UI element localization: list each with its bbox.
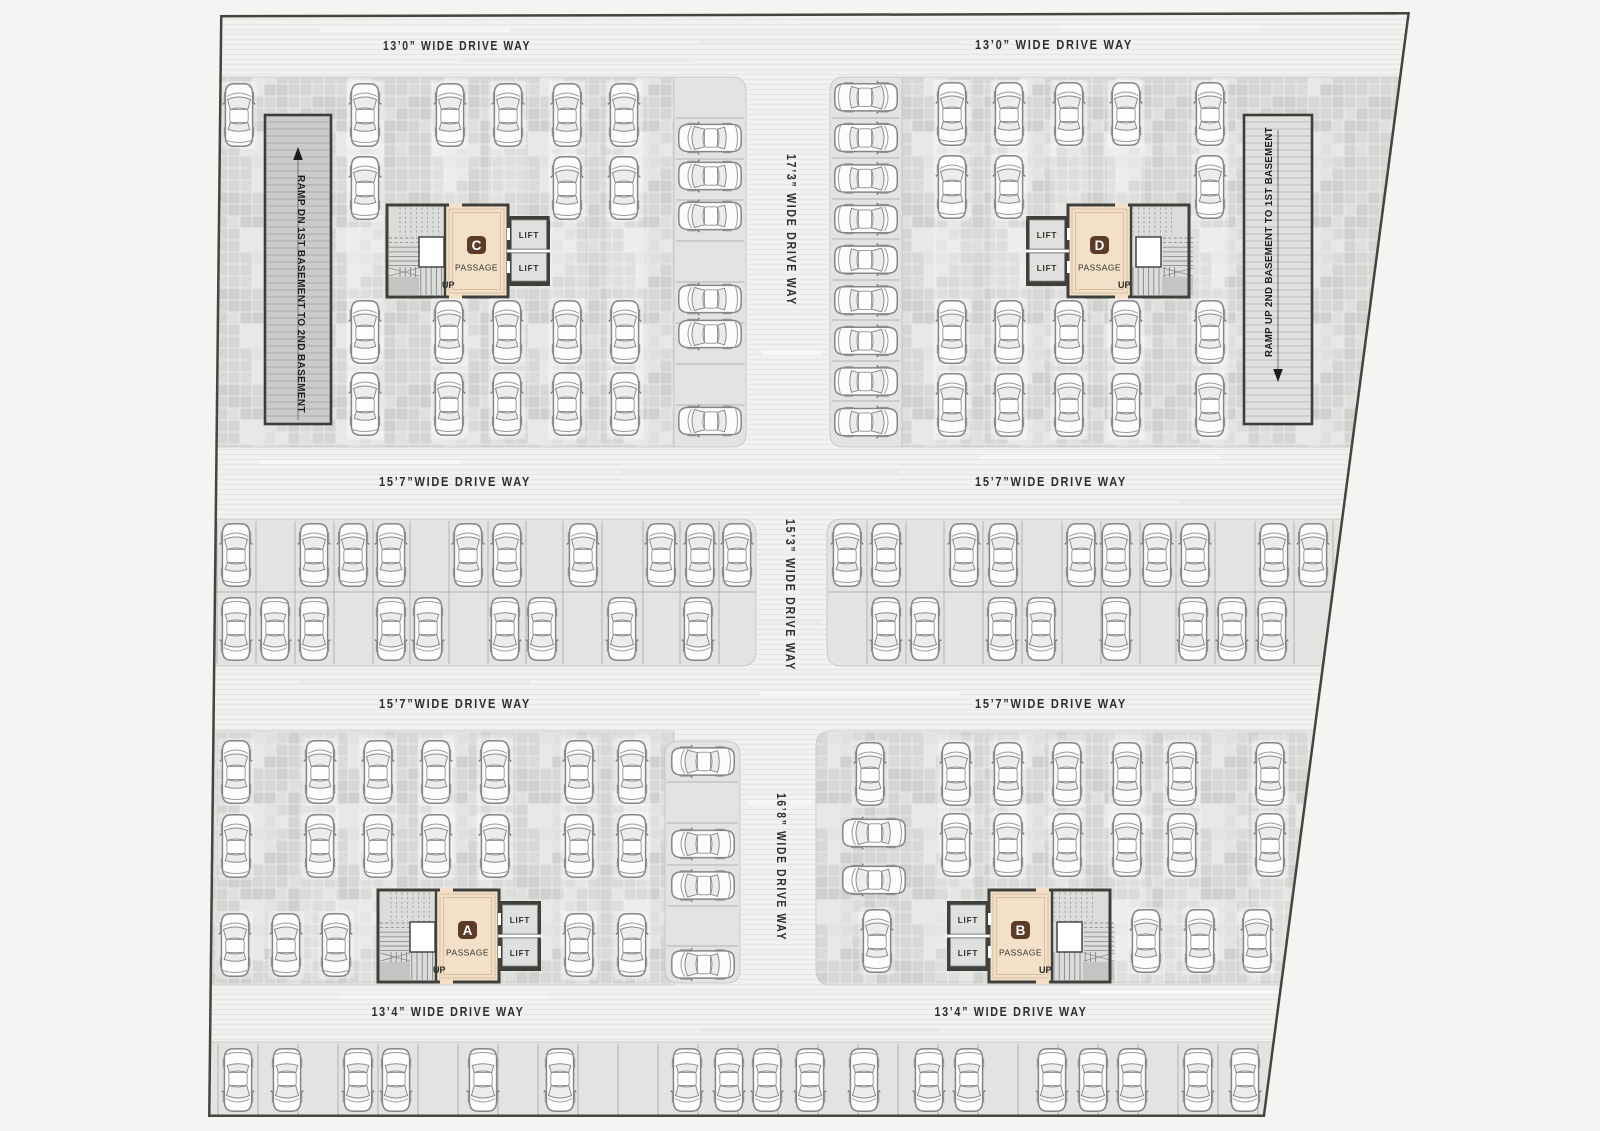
svg-text:13’4” WIDE DRIVE WAY: 13’4” WIDE DRIVE WAY xyxy=(935,1004,1088,1019)
svg-text:LIFT: LIFT xyxy=(510,949,530,958)
svg-text:15’7”WIDE DRIVE WAY: 15’7”WIDE DRIVE WAY xyxy=(379,474,531,489)
svg-text:LIFT: LIFT xyxy=(510,916,530,925)
svg-text:UP: UP xyxy=(442,280,455,290)
svg-text:C: C xyxy=(472,238,482,253)
svg-text:LIFT: LIFT xyxy=(958,916,978,925)
svg-text:B: B xyxy=(1016,923,1026,938)
svg-text:PASSAGE: PASSAGE xyxy=(446,948,489,958)
svg-text:PASSAGE: PASSAGE xyxy=(455,263,498,273)
svg-text:LIFT: LIFT xyxy=(519,231,539,240)
svg-text:UP: UP xyxy=(1118,280,1131,290)
svg-text:15’3” WIDE DRIVE WAY: 15’3” WIDE DRIVE WAY xyxy=(783,519,797,671)
svg-text:13’0” WIDE DRIVE WAY: 13’0” WIDE DRIVE WAY xyxy=(383,38,531,53)
svg-text:D: D xyxy=(1095,238,1105,253)
svg-text:LIFT: LIFT xyxy=(958,949,978,958)
svg-text:15’7”WIDE DRIVE WAY: 15’7”WIDE DRIVE WAY xyxy=(975,696,1127,711)
svg-text:RAMP UP 2ND BASEMENT TO 1ST BA: RAMP UP 2ND BASEMENT TO 1ST BASEMENT xyxy=(1264,127,1275,357)
svg-text:LIFT: LIFT xyxy=(1037,264,1057,273)
svg-text:PASSAGE: PASSAGE xyxy=(999,948,1042,958)
svg-text:16’8” WIDE DRIVE WAY: 16’8” WIDE DRIVE WAY xyxy=(774,793,788,941)
svg-text:UP: UP xyxy=(433,965,446,975)
svg-text:LIFT: LIFT xyxy=(1037,231,1057,240)
svg-text:15’7”WIDE DRIVE WAY: 15’7”WIDE DRIVE WAY xyxy=(379,696,531,711)
svg-text:A: A xyxy=(463,923,473,938)
svg-text:LIFT: LIFT xyxy=(519,264,539,273)
svg-text:17’3” WIDE DRIVE WAY: 17’3” WIDE DRIVE WAY xyxy=(784,154,798,306)
svg-text:15’7”WIDE DRIVE WAY: 15’7”WIDE DRIVE WAY xyxy=(975,474,1127,489)
svg-text:PASSAGE: PASSAGE xyxy=(1078,263,1121,273)
svg-text:13’0” WIDE DRIVE WAY: 13’0” WIDE DRIVE WAY xyxy=(975,37,1133,52)
svg-text:13’4” WIDE DRIVE WAY: 13’4” WIDE DRIVE WAY xyxy=(372,1004,525,1019)
svg-text:UP: UP xyxy=(1039,965,1052,975)
svg-text:RAMP DN 1ST BASEMENT TO 2ND BA: RAMP DN 1ST BASEMENT TO 2ND BASEMENT xyxy=(295,175,306,413)
